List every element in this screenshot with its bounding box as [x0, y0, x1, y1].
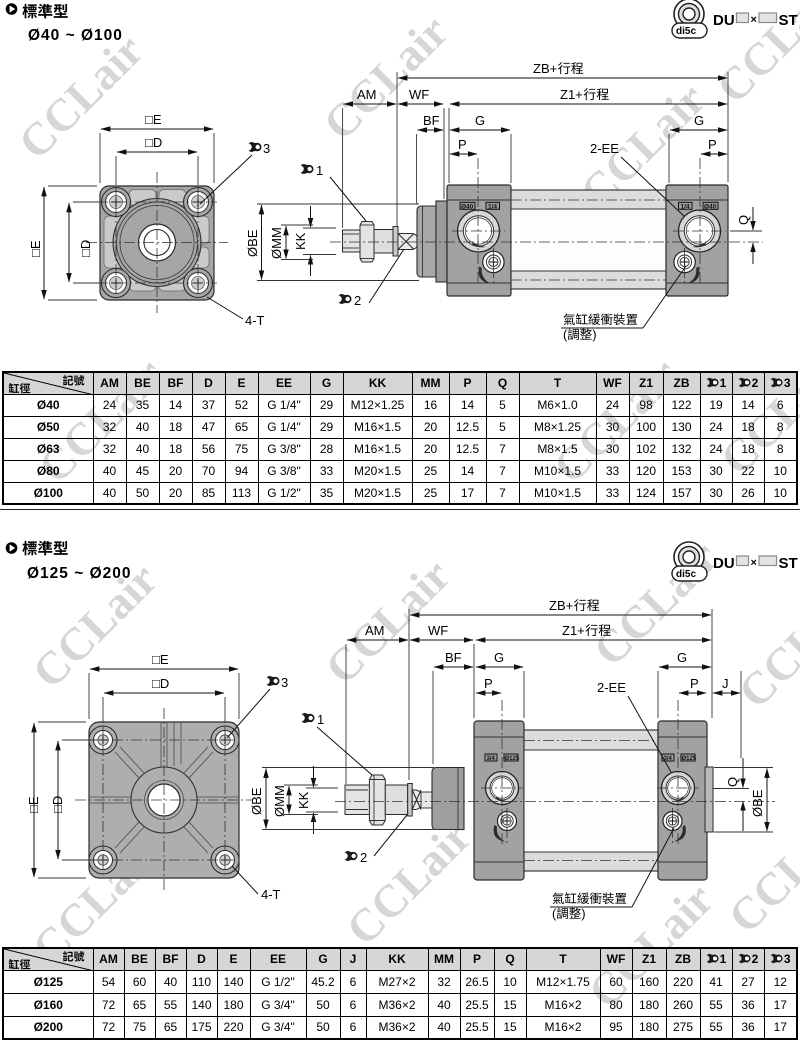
- svg-text:P: P: [708, 137, 717, 152]
- svg-text:G: G: [694, 113, 704, 128]
- svg-text:BF: BF: [445, 650, 462, 665]
- svg-text:ZB+: ZB+: [549, 598, 573, 613]
- svg-text:AM: AM: [357, 87, 377, 102]
- svg-text:2: 2: [360, 850, 367, 865]
- svg-text:□E: □E: [26, 796, 41, 813]
- svg-text:P: P: [458, 137, 467, 152]
- svg-text:G: G: [677, 650, 687, 665]
- svg-text:ØMM: ØMM: [272, 785, 287, 817]
- svg-text:Q: Q: [736, 215, 751, 225]
- svg-text:ØMM: ØMM: [269, 227, 284, 259]
- svg-text:WF: WF: [428, 623, 448, 638]
- svg-text:2: 2: [354, 293, 361, 308]
- svg-text:×: ×: [751, 557, 757, 569]
- svg-text:□E: □E: [145, 112, 162, 127]
- svg-text:DU: DU: [713, 12, 735, 29]
- svg-text:1/4: 1/4: [681, 203, 690, 210]
- svg-text:3: 3: [263, 141, 270, 156]
- svg-text:1: 1: [317, 712, 324, 727]
- svg-text:ST: ST: [779, 12, 798, 29]
- svg-text:2-EE: 2-EE: [597, 680, 626, 695]
- svg-text:di5c: di5c: [676, 26, 696, 37]
- svg-text:P: P: [484, 676, 493, 691]
- svg-text:4-T: 4-T: [245, 313, 265, 328]
- svg-text:Ø40: Ø40: [704, 203, 717, 210]
- svg-text:2-EE: 2-EE: [590, 141, 619, 156]
- svg-text:Ø40 ~ Ø100: Ø40 ~ Ø100: [28, 27, 123, 44]
- svg-text:DU: DU: [713, 555, 735, 572]
- svg-text:4-T: 4-T: [261, 887, 281, 902]
- svg-text:Ø125 ~ Ø200: Ø125 ~ Ø200: [27, 565, 132, 582]
- svg-text:3: 3: [281, 675, 288, 690]
- svg-text:3/4: 3/4: [487, 756, 496, 762]
- svg-text:□D: □D: [50, 796, 65, 813]
- svg-text:ST: ST: [779, 555, 798, 572]
- svg-text:Ø40: Ø40: [461, 203, 474, 210]
- svg-text:Z1+: Z1+: [560, 87, 583, 102]
- svg-text:BF: BF: [423, 113, 440, 128]
- svg-text:×: ×: [751, 14, 757, 26]
- svg-text:1: 1: [316, 163, 323, 178]
- svg-text:Ø125: Ø125: [505, 756, 520, 762]
- svg-text:1/4: 1/4: [488, 203, 497, 210]
- svg-text:ØBE: ØBE: [750, 789, 765, 817]
- svg-text:□E: □E: [28, 240, 43, 257]
- svg-text:AM: AM: [365, 623, 385, 638]
- svg-text:): ): [581, 907, 585, 921]
- svg-text:(: (: [563, 328, 568, 342]
- svg-text:KK: KK: [296, 791, 311, 809]
- svg-text:KK: KK: [293, 232, 308, 250]
- svg-text:□D: □D: [145, 135, 162, 150]
- svg-text:ØBE: ØBE: [245, 229, 260, 257]
- svg-text:): ): [592, 328, 596, 342]
- svg-text:ZB+: ZB+: [533, 61, 557, 76]
- svg-text:G: G: [494, 650, 504, 665]
- svg-text:□D: □D: [78, 240, 93, 257]
- svg-text:Q: Q: [725, 777, 740, 787]
- svg-text:□D: □D: [152, 676, 169, 691]
- svg-text:Ø125: Ø125: [682, 756, 697, 762]
- svg-text:□E: □E: [152, 652, 169, 667]
- svg-text:P: P: [690, 676, 699, 691]
- svg-text:(: (: [552, 907, 557, 921]
- svg-text:di5c: di5c: [676, 569, 696, 580]
- svg-text:Z1+: Z1+: [562, 623, 585, 638]
- svg-text:ØBE: ØBE: [249, 787, 264, 815]
- svg-text:G: G: [475, 113, 485, 128]
- svg-text:WF: WF: [409, 87, 429, 102]
- svg-text:J: J: [722, 676, 729, 691]
